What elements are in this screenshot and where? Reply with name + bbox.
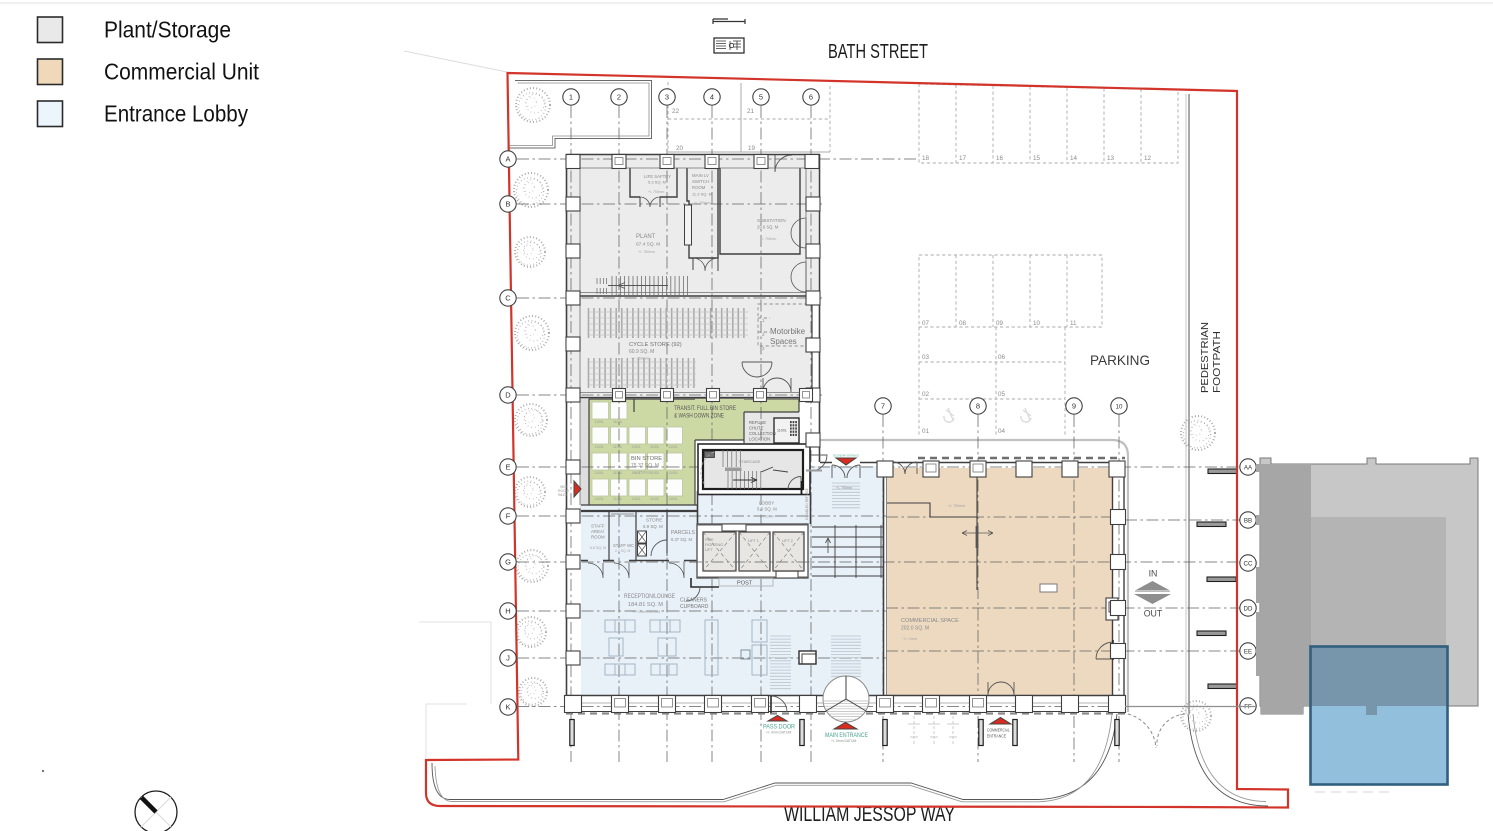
svg-text:CC: CC (1244, 560, 1253, 567)
svg-text:01: 01 (922, 428, 930, 435)
svg-text:16: 16 (996, 155, 1004, 162)
svg-text:5.9 SQ. M: 5.9 SQ. M (643, 524, 663, 529)
svg-text:LIFT: LIFT (705, 548, 713, 552)
svg-text:AA: AA (1244, 464, 1253, 471)
svg-text:3: 3 (665, 92, 669, 101)
svg-text:PASS DOOR: PASS DOOR (763, 724, 795, 731)
svg-text:FOOTPATH: FOOTPATH (1211, 331, 1223, 393)
svg-text:2.7 SQ. M: 2.7 SQ. M (615, 549, 630, 553)
svg-text:+/- 0mm DATUM: +/- 0mm DATUM (766, 731, 791, 735)
svg-text:1100L: 1100L (613, 471, 623, 475)
svg-text:1100L: 1100L (669, 471, 679, 475)
svg-text:SECONDARY ENTRANCE: SECONDARY ENTRANCE (833, 454, 859, 458)
svg-text:MAIN LV: MAIN LV (692, 173, 709, 178)
svg-text:1: 1 (569, 92, 573, 101)
svg-text:OUT: OUT (1144, 609, 1163, 619)
svg-text:STORE: STORE (646, 518, 662, 524)
svg-text:8: 8 (976, 401, 980, 410)
svg-text:LIFE SAFTEY: LIFE SAFTEY (644, 174, 671, 179)
svg-text:1100L: 1100L (669, 497, 679, 501)
svg-text:CUPBOARD: CUPBOARD (680, 604, 709, 610)
svg-text:BB: BB (1244, 517, 1252, 524)
svg-text:+/- 750mm: +/- 750mm (631, 357, 649, 361)
svg-text:1100L: 1100L (595, 497, 605, 501)
svg-text:17: 17 (959, 155, 967, 162)
svg-text:C: C (505, 293, 511, 302)
svg-text:1100L: 1100L (613, 445, 623, 449)
svg-text:& WASH DOWN ZONE: & WASH DOWN ZONE (674, 414, 724, 420)
svg-text:1100L: 1100L (613, 420, 623, 424)
svg-text:CHUTE: CHUTE (749, 426, 764, 431)
svg-text:14: 14 (1070, 155, 1078, 162)
svg-text:J: J (506, 653, 510, 662)
svg-text:20: 20 (676, 145, 684, 152)
svg-text:BATH STREET: BATH STREET (828, 41, 928, 63)
svg-text:DISABLED REFUGE: DISABLED REFUGE (805, 487, 809, 520)
svg-text:EE: EE (1244, 648, 1252, 655)
svg-text:Motorbike: Motorbike (770, 327, 806, 336)
svg-text:LIFT 1: LIFT 1 (748, 539, 759, 543)
svg-text:02: 02 (922, 391, 930, 398)
svg-text:4: 4 (710, 92, 714, 101)
svg-text:9: 9 (1072, 401, 1076, 410)
svg-text:19: 19 (748, 145, 756, 152)
svg-text:COMMERCIAL: COMMERCIAL (987, 728, 1010, 734)
svg-text:A: A (505, 154, 510, 163)
svg-text:Spaces: Spaces (770, 337, 797, 346)
svg-text:1100L: 1100L (650, 471, 660, 475)
svg-text:11.3 SQ. M: 11.3 SQ. M (692, 192, 712, 197)
svg-text:F: F (506, 511, 511, 520)
svg-text:FIRE: FIRE (705, 538, 714, 542)
svg-text:AREA/: AREA/ (591, 529, 605, 534)
svg-text:03: 03 (922, 354, 930, 361)
svg-text:CYCLE STORE (92): CYCLE STORE (92) (629, 342, 682, 348)
svg-text:1100L: 1100L (632, 497, 642, 501)
svg-text:Commercial Unit: Commercial Unit (104, 59, 259, 85)
svg-text:PEDESTRIAN: PEDESTRIAN (1199, 322, 1211, 393)
svg-text:BIN STORE: BIN STORE (631, 456, 662, 462)
svg-text:184.81 SQ. M: 184.81 SQ. M (628, 602, 663, 608)
svg-text:10: 10 (1033, 320, 1041, 327)
svg-text:LOCATION: LOCATION (749, 437, 770, 442)
svg-text:PLANT: PLANT (636, 234, 656, 240)
svg-text:12: 12 (1144, 155, 1152, 162)
svg-text:CLEANERS: CLEANERS (680, 598, 708, 604)
svg-text:+/- 750mm: +/- 750mm (694, 201, 710, 205)
svg-text:6: 6 (809, 92, 813, 101)
svg-text:1100L: 1100L (632, 445, 642, 449)
svg-text:H: H (505, 606, 510, 615)
svg-text:+/- 750mm: +/- 750mm (648, 190, 664, 194)
svg-text:1100L: 1100L (669, 445, 679, 449)
svg-text:DD: DD (1244, 605, 1253, 612)
svg-text:+/- 750mm: +/- 750mm (638, 250, 655, 254)
svg-text:08: 08 (959, 320, 967, 327)
svg-text:06: 06 (998, 354, 1006, 361)
svg-text:5: 5 (759, 92, 763, 101)
svg-text:1100L: 1100L (595, 445, 605, 449)
svg-text:STAIRCASE: STAIRCASE (739, 460, 761, 464)
svg-text:+/- 0mm DATUM: +/- 0mm DATUM (632, 610, 660, 614)
svg-text:MAIN ENTRANCE: MAIN ENTRANCE (825, 732, 868, 739)
svg-text:SWITCH: SWITCH (692, 179, 709, 184)
svg-text:1100L: 1100L (650, 497, 660, 501)
svg-text:SUBSTATION: SUBSTATION (757, 218, 786, 223)
svg-text:FIGHTING: FIGHTING (705, 543, 723, 547)
svg-text:2: 2 (617, 92, 621, 101)
svg-text:1100L: 1100L (650, 445, 660, 449)
svg-text:LIFT 2: LIFT 2 (782, 539, 793, 543)
svg-text:5.0 SQ. M: 5.0 SQ. M (757, 507, 777, 512)
svg-text:STAFF WC: STAFF WC (613, 543, 634, 548)
svg-text:B: B (505, 199, 510, 208)
svg-text:21: 21 (747, 108, 755, 115)
svg-text:1100L: 1100L (595, 471, 605, 475)
svg-text:+/- 0mm DATUM: +/- 0mm DATUM (831, 739, 856, 743)
svg-text:10: 10 (1116, 403, 1123, 410)
svg-text:29.9 SQ. M: 29.9 SQ. M (757, 225, 779, 230)
svg-text:04: 04 (998, 428, 1006, 435)
svg-text:09: 09 (996, 320, 1004, 327)
svg-text:COMMERCIAL SPACE: COMMERCIAL SPACE (901, 618, 959, 624)
svg-text:18: 18 (922, 155, 930, 162)
svg-text:67.4 SQ. M: 67.4 SQ. M (636, 242, 660, 248)
svg-text:E: E (505, 462, 510, 471)
svg-text:STAFF: STAFF (591, 524, 605, 529)
svg-text:1100L: 1100L (613, 497, 623, 501)
svg-text:05: 05 (998, 391, 1006, 398)
svg-text:LOBBY: LOBBY (759, 501, 774, 506)
svg-text:POST: POST (737, 581, 753, 587)
svg-text:Plant/Storage: Plant/Storage (104, 17, 231, 43)
svg-text:1100L: 1100L (595, 420, 605, 424)
svg-text:G: G (505, 557, 511, 566)
svg-text:+/- 750mm: +/- 750mm (758, 515, 774, 519)
svg-text:+/- 750mm: +/- 750mm (760, 237, 776, 241)
svg-text:Entrance Lobby: Entrance Lobby (104, 101, 248, 127)
svg-text:7: 7 (881, 401, 885, 410)
svg-text:+/- 0mm: +/- 0mm (903, 637, 917, 641)
svg-text:13: 13 (1107, 155, 1115, 162)
svg-text:D: D (505, 390, 511, 399)
svg-text:ENTRANCE: ENTRANCE (987, 734, 1006, 740)
svg-text:IN: IN (1149, 569, 1158, 579)
svg-text:60.9 SQ. M: 60.9 SQ. M (629, 349, 654, 355)
svg-text:TRANSIT. FULL BIN STORE: TRANSIT. FULL BIN STORE (674, 406, 736, 412)
svg-text:+/- 750mm: +/- 750mm (633, 471, 651, 475)
svg-text:11: 11 (1070, 320, 1077, 327)
svg-text:ROOM: ROOM (591, 535, 605, 540)
svg-text:07: 07 (922, 320, 930, 327)
svg-text:INLET: INLET (558, 493, 568, 497)
svg-text:6.37 SQ. M: 6.37 SQ. M (671, 537, 692, 542)
svg-text:15: 15 (1033, 155, 1041, 162)
svg-text:6.8 SQ. M: 6.8 SQ. M (590, 546, 606, 550)
svg-text:1100L: 1100L (777, 429, 787, 433)
svg-text:ROOM: ROOM (692, 185, 706, 190)
svg-text:REFUSE: REFUSE (749, 420, 766, 425)
svg-text:COLLECTION: COLLECTION (749, 431, 776, 436)
svg-text:PARCELS: PARCELS (671, 530, 695, 536)
svg-text:75.37 SQ. M: 75.37 SQ. M (631, 463, 659, 469)
svg-text:+/- 750mm: +/- 750mm (948, 504, 965, 508)
svg-text:+/- 750mm: +/- 750mm (836, 486, 852, 490)
svg-text:RECEPTION/LOUNGE: RECEPTION/LOUNGE (624, 593, 675, 600)
svg-text:5.3 SQ. M: 5.3 SQ. M (648, 180, 666, 185)
svg-text:202.0 SQ. M: 202.0 SQ. M (901, 626, 929, 632)
svg-text:22: 22 (672, 108, 680, 115)
svg-text:K: K (505, 702, 510, 711)
svg-text:PARKING: PARKING (1090, 352, 1150, 368)
